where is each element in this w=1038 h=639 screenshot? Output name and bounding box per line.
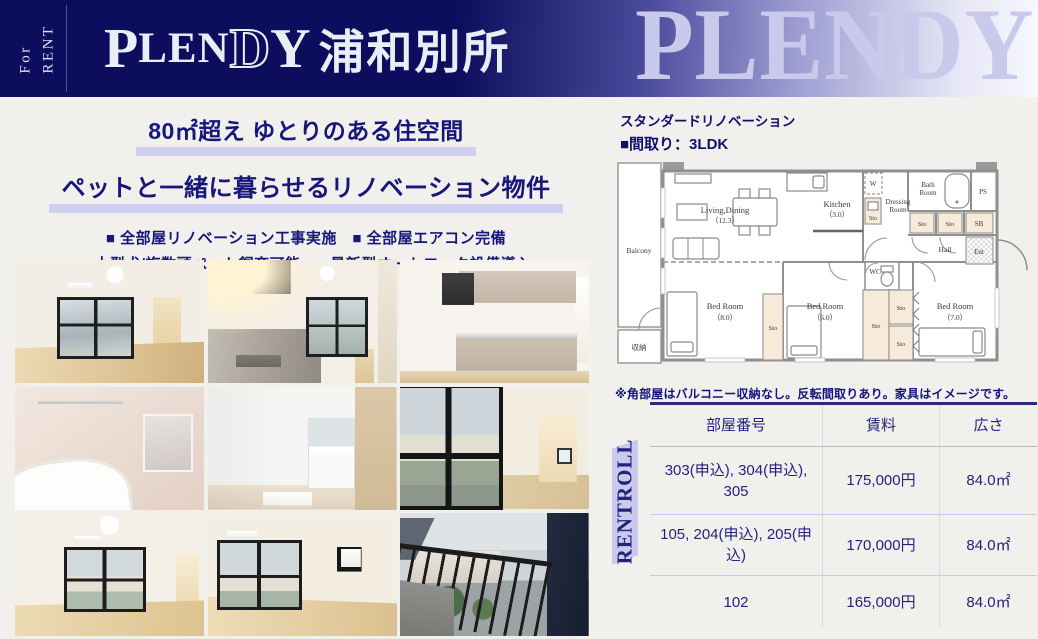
room-label-hall: Hall — [939, 245, 952, 254]
floorplan-svg: Balcony 収納 Living,Dining （12.3） Kitchen … — [615, 158, 1037, 370]
photo-balcony-window-room — [400, 387, 589, 510]
table-header-row: 部屋番号 賃料 広さ — [650, 405, 1037, 447]
room-label-dressing-2: Room — [889, 206, 907, 214]
cell-rent-2: 170,000円 — [822, 515, 939, 575]
floorplan-layout-title: ■間取り：3LDK — [620, 133, 795, 154]
floorplan-note: ※角部屋はバルコニー収納なし。反転間取りあり。家具はイメージです。 — [615, 385, 1015, 402]
room-label-closet: 収納 — [632, 342, 647, 352]
room-label-bath-2: Room — [919, 189, 937, 197]
room-label-bed6-size: （6.0） — [813, 313, 837, 322]
cell-area-1: 84.0㎡ — [939, 447, 1037, 514]
for-rent-line2: RENT — [37, 24, 60, 73]
hero-copy: 80㎡超え ゆとりのある住空間 ペットと一緒に暮らせるリノベーション物件 ■ 全… — [10, 104, 602, 279]
column-header-room-number: 部屋番号 — [650, 405, 822, 446]
cell-rooms-3: 102 — [650, 576, 822, 628]
floorplan-subtitle: スタンダードリノベーション — [620, 110, 795, 130]
room-label-sto-bed8: Sto — [769, 325, 778, 332]
table-row-1: 303(申込), 304(申込), 305 175,000円 84.0㎡ — [650, 447, 1037, 515]
photo-bedroom-2 — [208, 513, 397, 636]
headline-2-text: ペットと一緒に暮らせるリノベーション物件 — [49, 168, 562, 213]
rentroll-table: 部屋番号 賃料 広さ 303(申込), 304(申込), 305 175,000… — [650, 402, 1037, 628]
room-label-bed8-size: （8.0） — [713, 313, 737, 322]
room-label-washer: W — [870, 180, 877, 188]
table-row-2: 105, 204(申込), 205(申込) 170,000円 84.0㎡ — [650, 515, 1037, 576]
room-label-sto-2: Sto — [946, 221, 955, 228]
room-label-bath-1: Bath — [921, 181, 935, 189]
photo-washroom-vanity — [208, 387, 397, 510]
room-label-bed7: Bed Room — [937, 301, 974, 311]
room-label-living-size: （12.3） — [711, 216, 739, 225]
room-label-sto-small-1: Sto — [897, 305, 906, 312]
room-label-kitchen-size: （3.0） — [825, 210, 849, 219]
room-label-living: Living,Dining — [701, 205, 750, 215]
cell-rooms-1: 303(申込), 304(申込), 305 — [650, 447, 822, 514]
room-label-sto-large: Sto — [872, 323, 881, 330]
room-label-sto-1: Sto — [918, 221, 927, 228]
room-label-wc: WC — [869, 268, 881, 276]
room-label-kitchen: Kitchen — [824, 199, 852, 209]
photo-balcony-view — [400, 513, 589, 636]
room-label-sto-small-2: Sto — [897, 341, 906, 348]
headline-2: ペットと一緒に暮らせるリノベーション物件 — [10, 168, 602, 213]
column-header-area: 広さ — [939, 405, 1037, 446]
logo-letter-y: Y — [270, 17, 310, 81]
plendy-watermark: PLENDY — [635, 0, 1034, 97]
floorplan-heading: スタンダードリノベーション ■間取り：3LDK — [620, 110, 795, 154]
photo-living-room — [15, 260, 204, 383]
room-label-ent: Ent — [974, 248, 984, 256]
cell-rent-3: 165,000円 — [822, 576, 939, 628]
room-label-bed8: Bed Room — [707, 301, 744, 311]
column-header-rent: 賃料 — [822, 405, 939, 446]
for-rent-line1: For — [15, 24, 38, 73]
photo-bedroom-1 — [15, 513, 204, 636]
room-label-bed7-size: （7.0） — [943, 313, 967, 322]
header-banner: For RENT PLENDY 浦和別所 PLENDY — [0, 0, 1038, 97]
cell-rent-1: 175,000円 — [822, 447, 939, 514]
room-label-sto-kitchen: Sto — [869, 216, 877, 222]
headline-1-text: 80㎡超え ゆとりのある住空間 — [136, 112, 475, 156]
cell-area-2: 84.0㎡ — [939, 515, 1037, 575]
logo-property-name-jp: 浦和別所 — [319, 16, 511, 82]
rentroll-vertical-text: RENTROLL — [613, 438, 638, 564]
for-rent-badge: For RENT — [8, 5, 67, 92]
photo-kitchen-living-view — [208, 260, 397, 383]
photo-bathroom — [15, 387, 204, 510]
room-label-dressing-1: Dressing — [886, 198, 911, 206]
feature-line-1: ■ 全部屋リノベーション工事実施 ■ 全部屋エアコン完備 — [10, 227, 602, 248]
cell-rooms-2: 105, 204(申込), 205(申込) — [650, 515, 822, 575]
room-label-ps: PS — [979, 188, 987, 196]
flyer-page: For RENT PLENDY 浦和別所 PLENDY 80㎡超え ゆとりのある… — [0, 0, 1038, 639]
logo-letter-d-outline: D — [230, 17, 270, 81]
headline-1: 80㎡超え ゆとりのある住空間 — [10, 112, 602, 156]
room-label-balcony: Balcony — [627, 246, 652, 255]
room-label-sb: SB — [975, 220, 984, 228]
photo-kitchen-unit — [400, 260, 589, 383]
photo-grid — [15, 260, 589, 636]
room-label-bed6: Bed Room — [807, 301, 844, 311]
logo-letter-p: P — [104, 17, 138, 81]
floorplan-drawing: Balcony 収納 Living,Dining （12.3） Kitchen … — [615, 158, 1037, 370]
table-row-3: 102 165,000円 84.0㎡ — [650, 576, 1037, 628]
cell-area-3: 84.0㎡ — [939, 576, 1037, 628]
logo-letters-len: LEN — [138, 24, 229, 73]
property-logo: PLENDY 浦和別所 — [104, 0, 511, 97]
